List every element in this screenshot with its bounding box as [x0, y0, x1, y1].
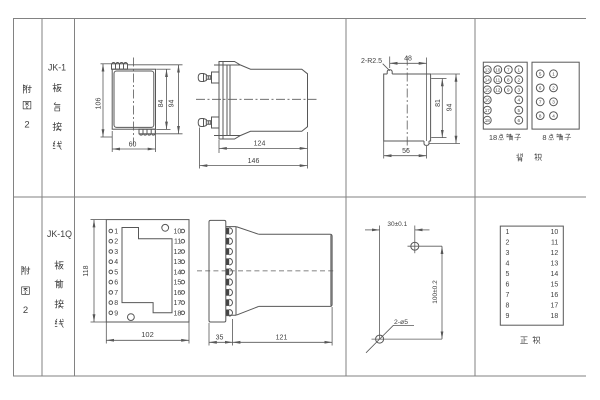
svg-text:11: 11: [495, 77, 500, 82]
svg-text:60: 60: [129, 142, 137, 149]
svg-text:100±0.2: 100±0.2: [432, 280, 439, 304]
svg-text:15: 15: [174, 280, 182, 287]
svg-text:7: 7: [506, 292, 510, 299]
svg-text:17: 17: [485, 108, 491, 113]
svg-text:14: 14: [551, 271, 559, 278]
svg-text:121: 121: [276, 334, 288, 341]
svg-text:5: 5: [518, 108, 521, 113]
svg-text:3: 3: [114, 249, 118, 256]
svg-text:17: 17: [551, 303, 559, 310]
svg-text:94: 94: [168, 100, 175, 108]
svg-text:3: 3: [518, 88, 521, 93]
svg-text:5: 5: [539, 72, 542, 77]
svg-text:35: 35: [216, 334, 224, 341]
svg-text:2: 2: [518, 77, 521, 82]
svg-text:18: 18: [174, 310, 182, 317]
svg-text:4: 4: [518, 98, 521, 103]
svg-text:5: 5: [114, 269, 118, 276]
svg-text:2: 2: [552, 86, 555, 91]
svg-text:2-ø5: 2-ø5: [394, 319, 408, 326]
svg-text:8: 8: [539, 113, 542, 118]
svg-text:6: 6: [114, 280, 118, 287]
svg-text:102: 102: [141, 330, 154, 339]
svg-text:84: 84: [158, 100, 165, 108]
svg-text:7: 7: [539, 100, 542, 105]
svg-text:56: 56: [402, 148, 410, 155]
svg-text:1: 1: [506, 229, 510, 236]
svg-text:7: 7: [507, 67, 510, 72]
svg-text:17: 17: [174, 300, 182, 307]
svg-text:8: 8: [542, 133, 546, 142]
svg-text:12: 12: [174, 249, 182, 256]
svg-text:2: 2: [506, 240, 510, 247]
svg-text:1: 1: [518, 67, 521, 72]
svg-text:1: 1: [114, 229, 118, 236]
svg-text:4: 4: [506, 261, 510, 268]
svg-text:8: 8: [506, 303, 510, 310]
svg-text:7: 7: [114, 290, 118, 297]
svg-text:14: 14: [174, 269, 182, 276]
svg-text:4: 4: [114, 259, 118, 266]
svg-text:2: 2: [24, 120, 29, 131]
svg-text:15: 15: [485, 88, 491, 93]
svg-text:11: 11: [174, 239, 181, 246]
svg-text:6: 6: [506, 282, 510, 289]
svg-text:4: 4: [552, 113, 555, 118]
svg-text:9: 9: [114, 310, 118, 317]
svg-text:18: 18: [485, 118, 491, 123]
svg-text:13: 13: [174, 259, 182, 266]
svg-text:16: 16: [174, 290, 182, 297]
svg-text:106: 106: [95, 98, 102, 110]
svg-text:10: 10: [551, 229, 559, 236]
svg-text:6: 6: [539, 86, 542, 91]
svg-text:5: 5: [506, 271, 510, 278]
svg-text:6: 6: [518, 118, 521, 123]
svg-text:30±0.1: 30±0.1: [387, 221, 407, 228]
svg-text:48: 48: [404, 56, 412, 63]
svg-text:13: 13: [551, 261, 559, 268]
svg-text:3: 3: [506, 250, 510, 257]
svg-text:124: 124: [254, 141, 266, 148]
svg-text:8: 8: [507, 77, 510, 82]
svg-text:18: 18: [489, 133, 497, 142]
svg-text:118: 118: [83, 265, 90, 276]
svg-text:JK-1Q: JK-1Q: [47, 229, 72, 239]
svg-text:9: 9: [507, 88, 510, 93]
svg-text:JK-1: JK-1: [48, 63, 66, 73]
svg-text:10: 10: [174, 229, 182, 236]
svg-text:10: 10: [495, 67, 501, 72]
svg-text:12: 12: [495, 88, 501, 93]
svg-text:81: 81: [435, 99, 442, 107]
svg-text:146: 146: [248, 158, 260, 165]
svg-text:16: 16: [485, 98, 491, 103]
svg-text:18: 18: [551, 313, 559, 320]
svg-text:14: 14: [485, 77, 491, 82]
svg-text:2: 2: [23, 305, 28, 316]
svg-text:1: 1: [552, 72, 555, 77]
svg-text:12: 12: [551, 250, 559, 257]
svg-text:16: 16: [551, 292, 559, 299]
svg-text:3: 3: [552, 100, 555, 105]
svg-text:15: 15: [551, 282, 559, 289]
svg-text:2: 2: [114, 239, 118, 246]
svg-text:13: 13: [485, 67, 491, 72]
svg-text:8: 8: [114, 300, 118, 307]
svg-text:9: 9: [506, 313, 510, 320]
svg-text:11: 11: [551, 240, 558, 247]
svg-text:94: 94: [447, 104, 454, 112]
svg-text:2-R2.5: 2-R2.5: [361, 58, 382, 65]
